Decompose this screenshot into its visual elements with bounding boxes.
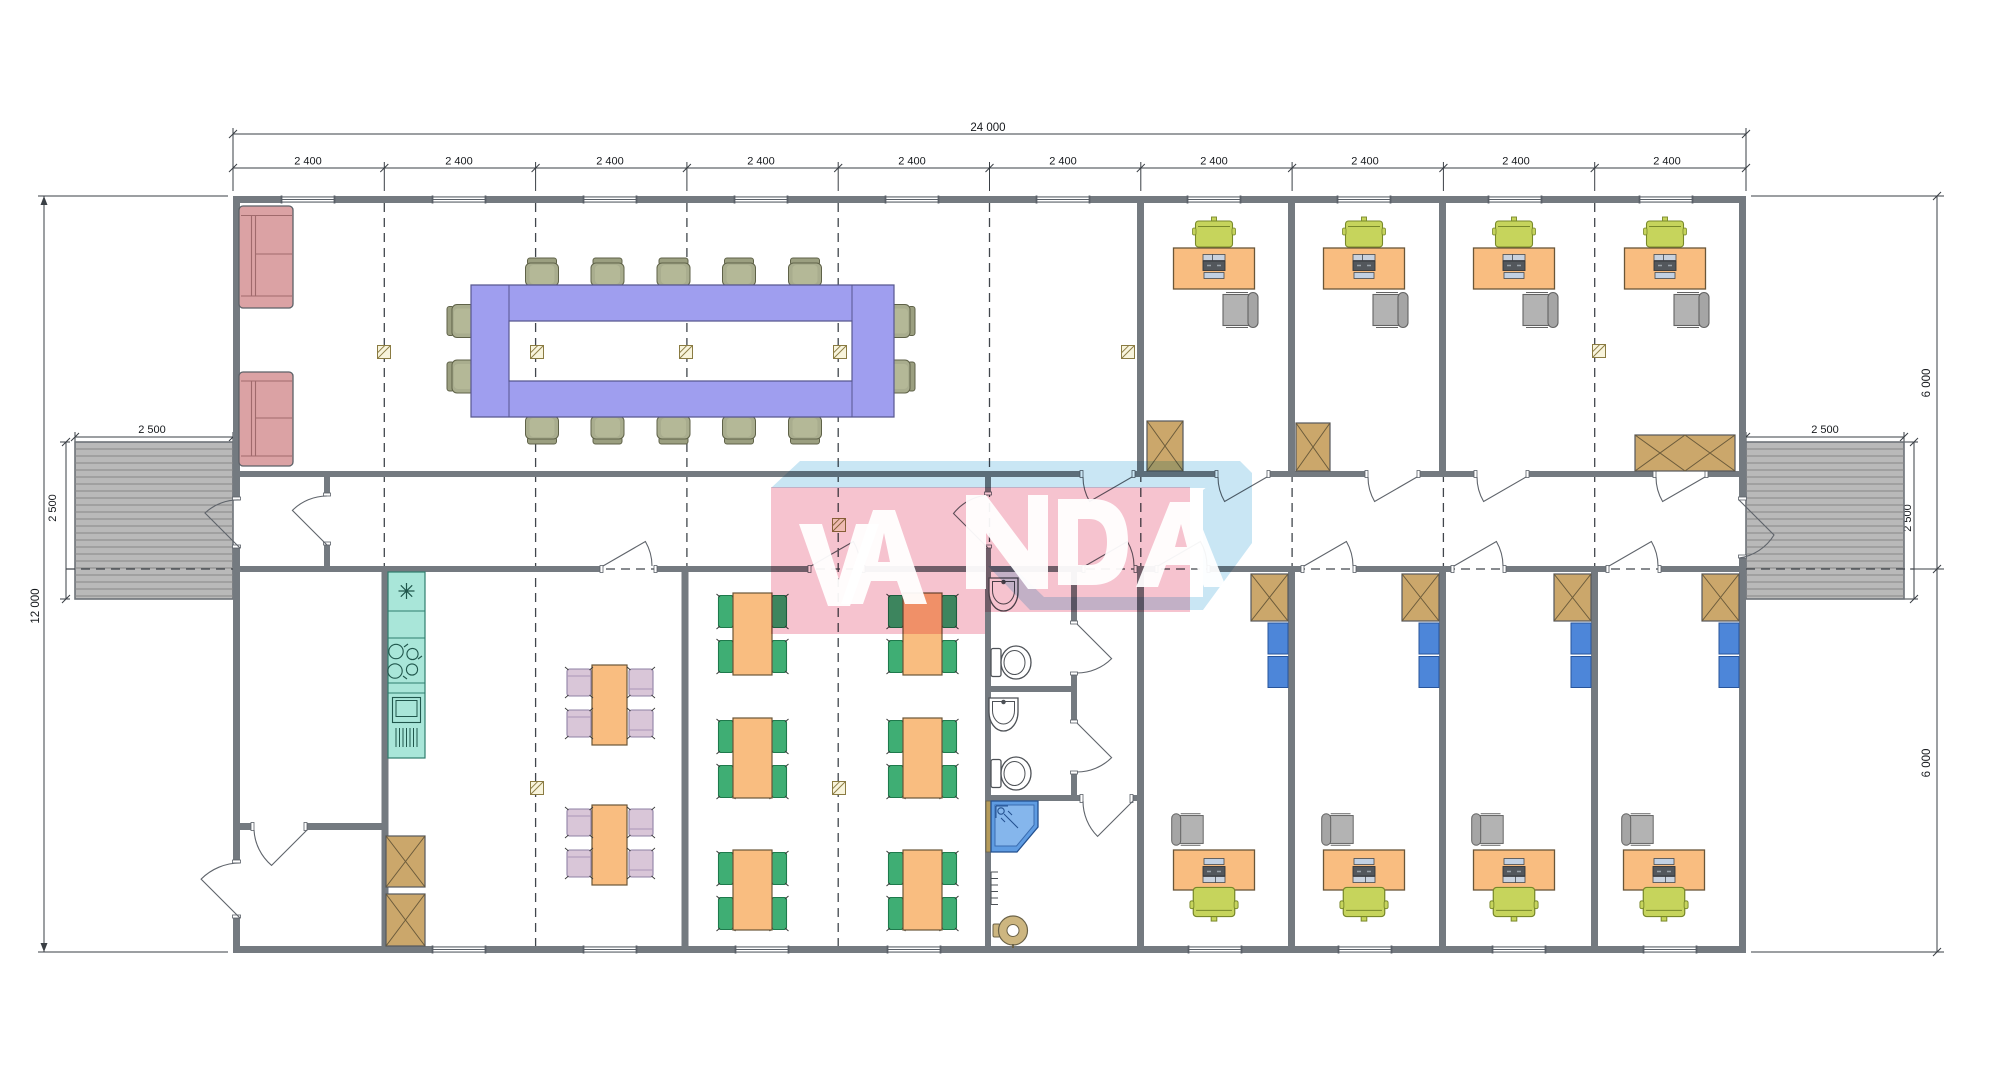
svg-text:2 400: 2 400	[1502, 156, 1530, 168]
svg-text:6 000: 6 000	[1921, 749, 1933, 778]
svg-text:2 400: 2 400	[1351, 156, 1379, 168]
svg-text:2 400: 2 400	[596, 156, 624, 168]
svg-text:24 000: 24 000	[970, 122, 1005, 134]
svg-text:2 400: 2 400	[898, 156, 926, 168]
svg-text:2 400: 2 400	[1200, 156, 1228, 168]
svg-text:2 500: 2 500	[1811, 424, 1839, 436]
svg-text:12 000: 12 000	[30, 588, 42, 623]
svg-text:2 400: 2 400	[445, 156, 473, 168]
svg-text:6 000: 6 000	[1921, 369, 1933, 398]
svg-text:2 400: 2 400	[747, 156, 775, 168]
svg-text:2 500: 2 500	[47, 494, 59, 522]
svg-text:2 400: 2 400	[1653, 156, 1681, 168]
svg-text:2 400: 2 400	[294, 156, 322, 168]
svg-text:2 500: 2 500	[138, 424, 166, 436]
svg-text:2 400: 2 400	[1049, 156, 1077, 168]
